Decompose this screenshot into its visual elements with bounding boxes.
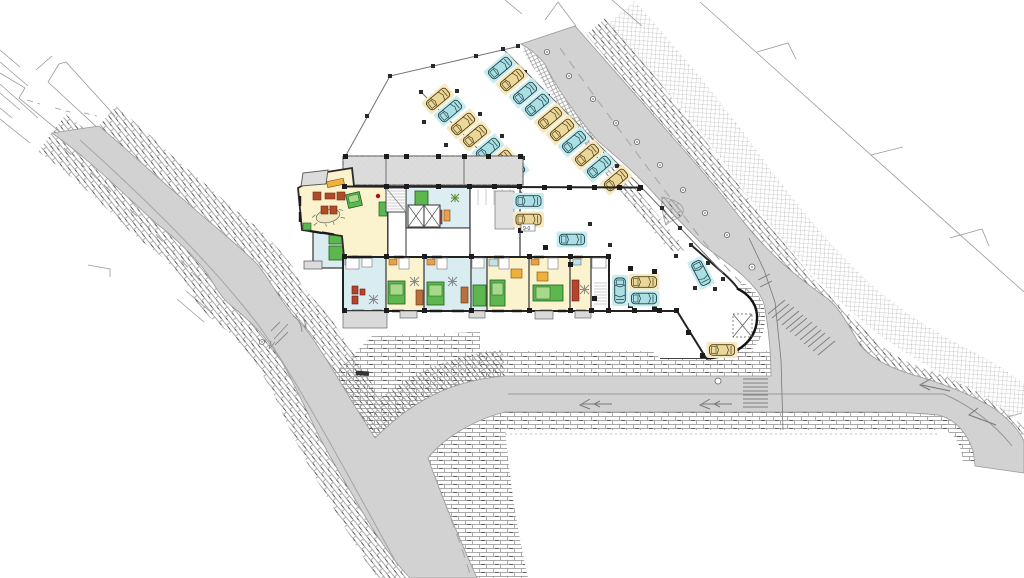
svg-text:9-0: 9-0 — [523, 226, 530, 232]
